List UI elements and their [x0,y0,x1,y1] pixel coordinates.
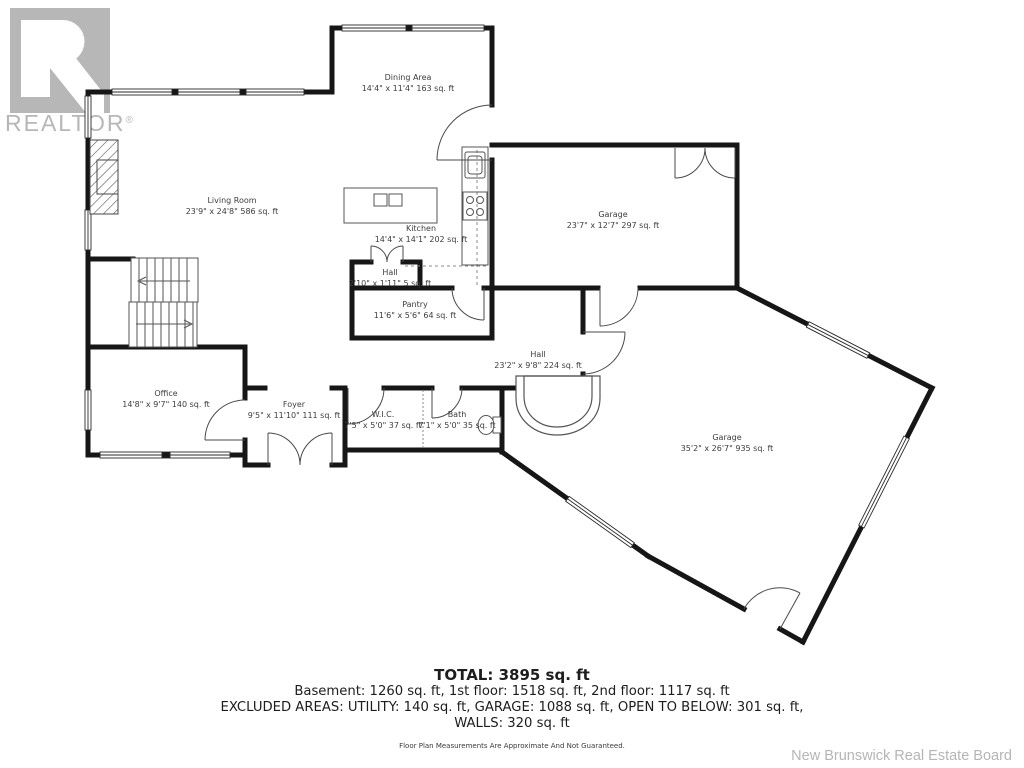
room-label-foyer: Foyer9'5" x 11'10" 111 sq. ft [248,399,341,421]
garage-door-left [566,496,635,547]
floorplan-page: { "branding": { "logo_text": "REALTOR", … [0,0,1024,768]
kitchen-island [344,188,437,223]
room-label-wic: W.I.C.7'5" x 5'0" 37 sq. ft [344,409,421,431]
room-label-kitchen: Kitchen14'4" x 14'1" 202 sq. ft [375,223,468,245]
stove-icon [463,192,487,220]
room-label-living-room: Living Room23'9" x 24'8" 586 sq. ft [186,195,279,217]
floor-plan [0,0,1024,768]
summary-walls: WALLS: 320 sq. ft [0,716,1024,732]
room-label-hall-small: Hall2'10" x 1'11" 5 sq. ft [349,267,431,289]
garage-door-right [859,436,910,528]
attribution: New Brunswick Real Estate Board [791,748,1012,764]
fireplace-icon [90,140,118,214]
room-label-bath: Bath7'1" x 5'0" 35 sq. ft [418,409,495,431]
room-label-garage-upper: Garage23'7" x 12'7" 297 sq. ft [567,209,660,231]
summary-excluded: EXCLUDED AREAS: UTILITY: 140 sq. ft, GAR… [0,700,1024,716]
stairs-icon [129,258,198,347]
room-label-pantry: Pantry11'6" x 5'6" 64 sq. ft [374,299,456,321]
summary-total: TOTAL: 3895 sq. ft [0,666,1024,684]
room-label-dining-area: Dining Area14'4" x 11'4" 163 sq. ft [362,72,455,94]
realtor-logo-icon [10,8,110,113]
room-label-hall-main: Hall23'2" x 9'8" 224 sq. ft [494,349,582,371]
kitchen-counter [462,147,488,265]
room-label-office: Office14'8" x 9'7" 140 sq. ft [122,388,210,410]
summary-floors: Basement: 1260 sq. ft, 1st floor: 1518 s… [0,684,1024,700]
room-label-garage-lower: Garage35'2" x 26'7" 935 sq. ft [681,432,774,454]
area-summary: TOTAL: 3895 sq. ft Basement: 1260 sq. ft… [0,666,1024,732]
walls [88,28,932,642]
basement-stair-bay [516,376,600,435]
